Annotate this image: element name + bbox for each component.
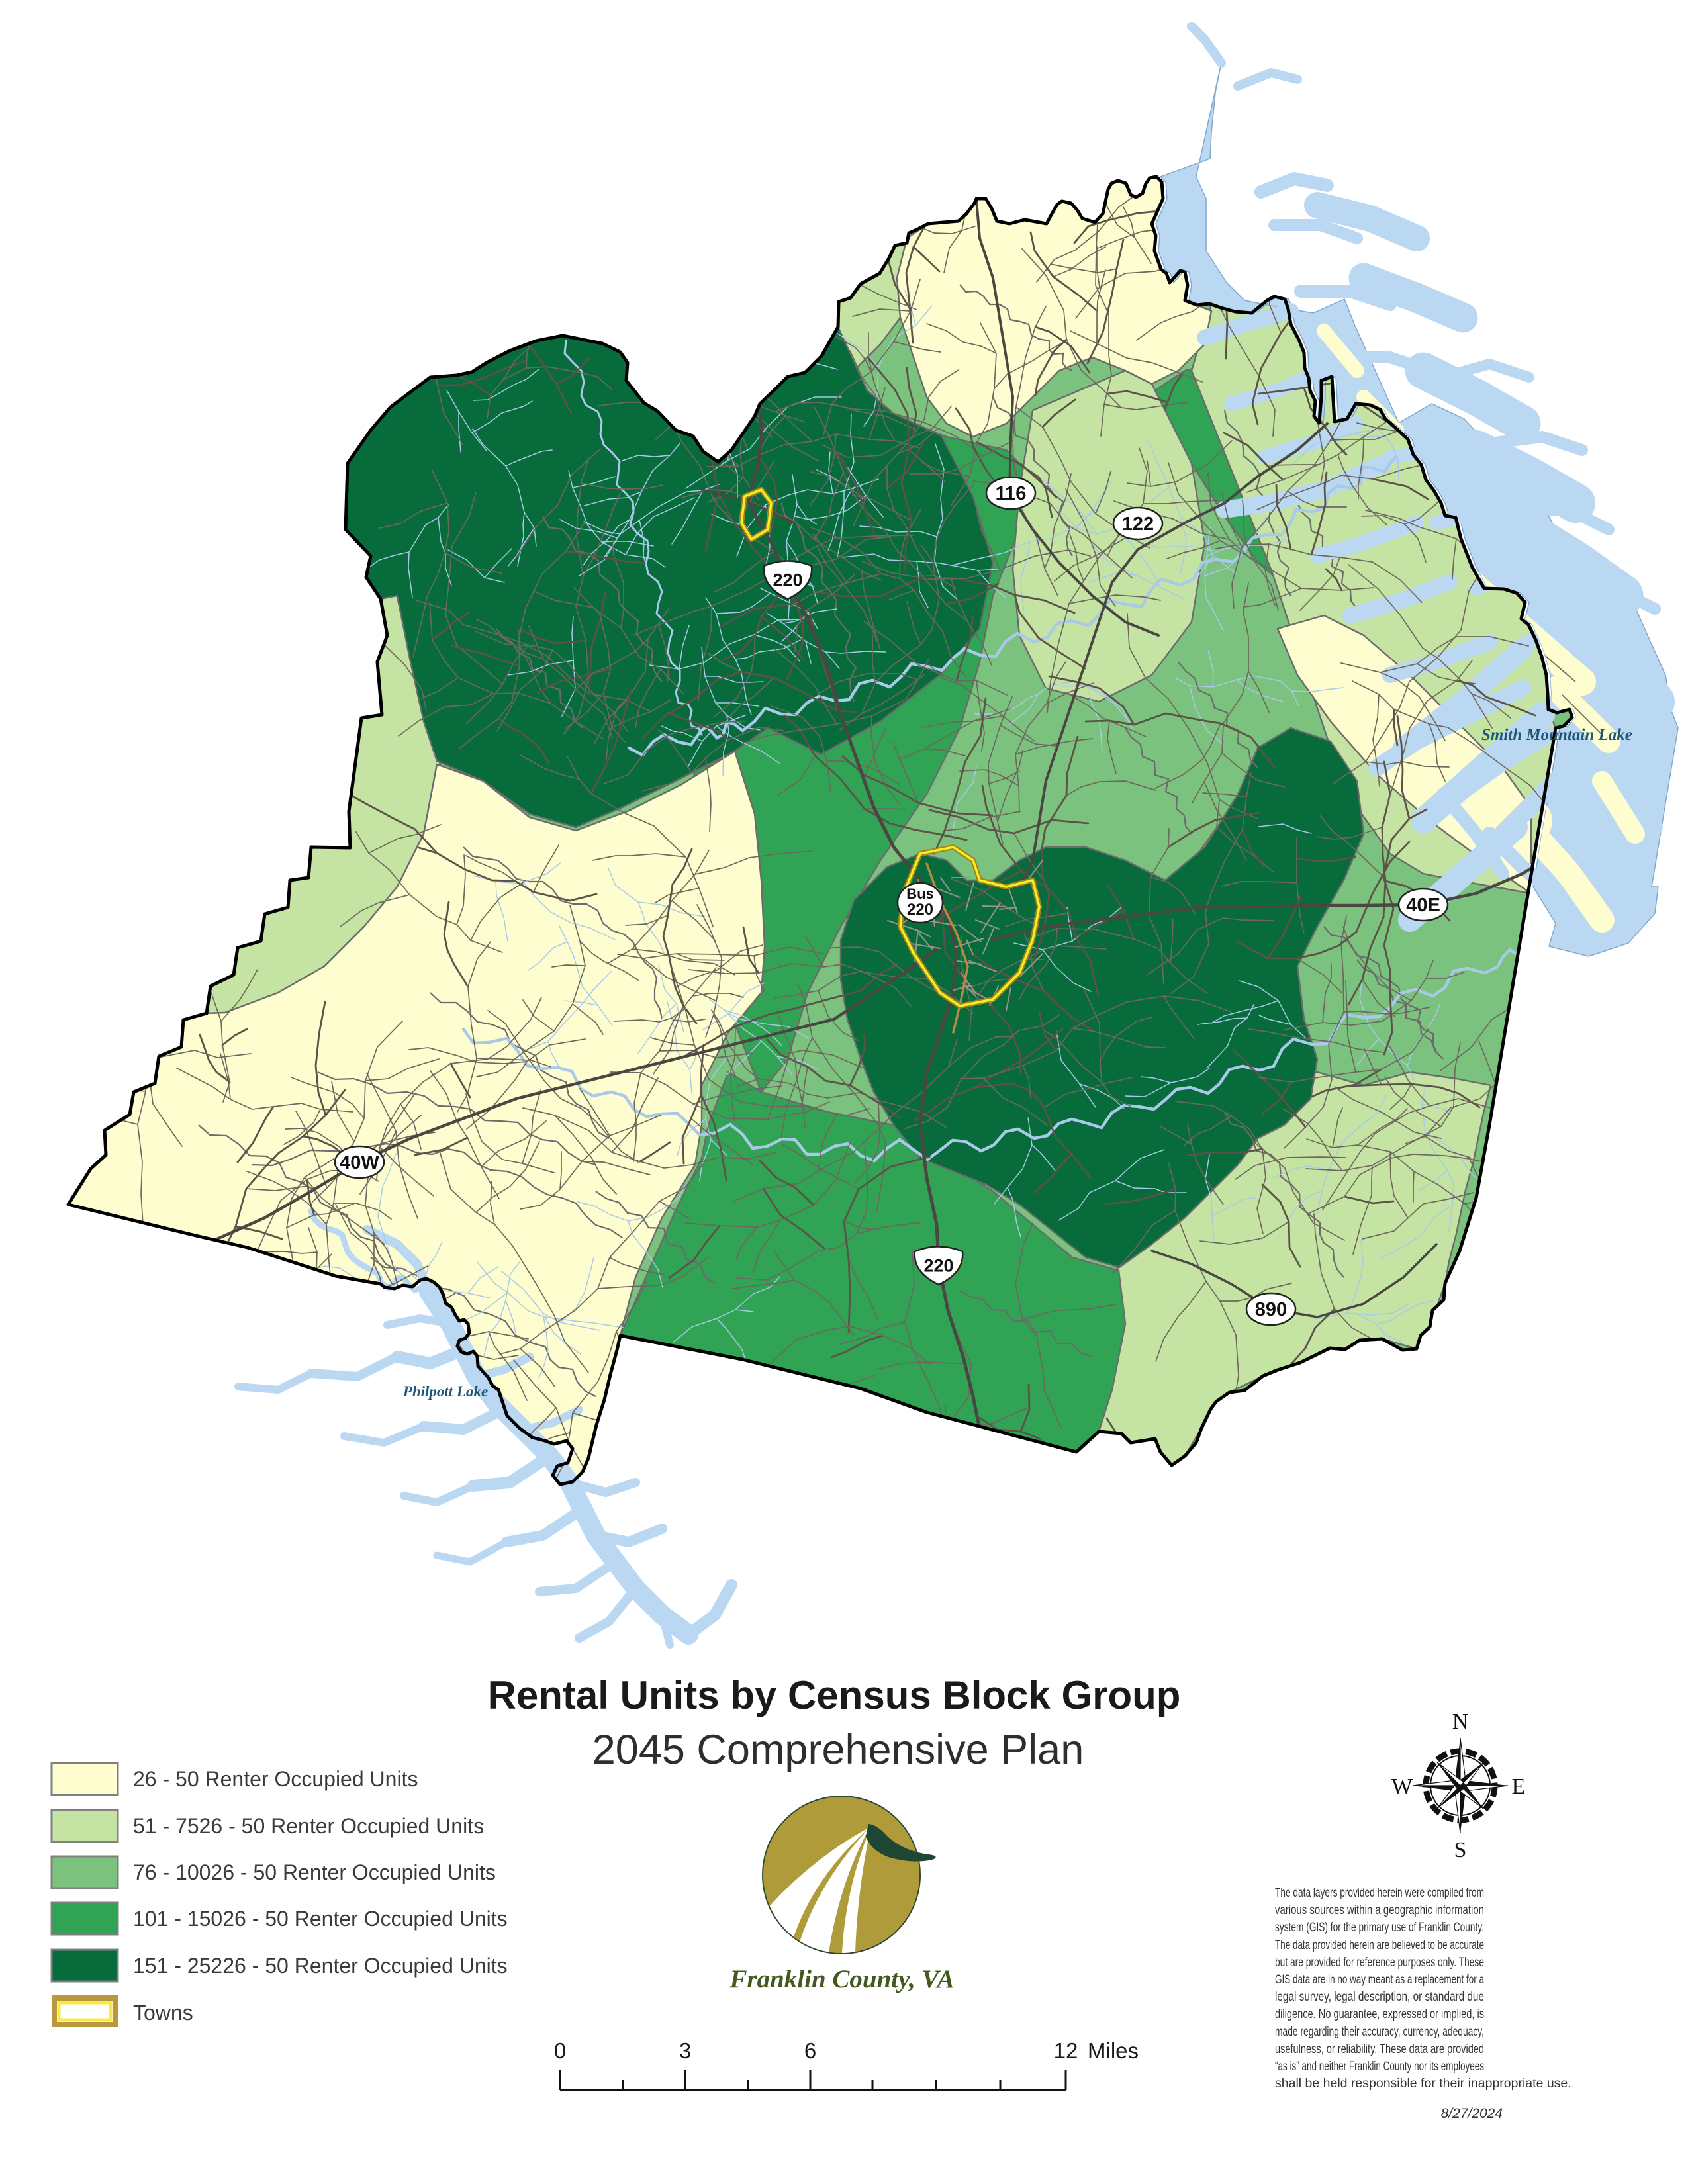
svg-text:N: N: [1452, 1709, 1469, 1734]
svg-text:usefulness, or reliability. Th: usefulness, or reliability. These data a…: [1275, 2042, 1484, 2056]
svg-text:Towns: Towns: [133, 2001, 193, 2025]
svg-text:6: 6: [804, 2038, 816, 2063]
svg-text:220: 220: [907, 901, 933, 919]
svg-text:Smith Mountain Lake: Smith Mountain Lake: [1481, 726, 1632, 744]
svg-text:3: 3: [679, 2038, 691, 2063]
svg-text:116: 116: [996, 483, 1027, 504]
svg-text:Miles: Miles: [1088, 2038, 1139, 2063]
svg-text:“as is” and neither Franklin C: “as is” and neither Franklin County nor …: [1275, 2059, 1484, 2073]
svg-text:890: 890: [1255, 1299, 1287, 1320]
svg-text:W: W: [1391, 1774, 1413, 1799]
svg-text:151 - 25226 - 50 Renter Occupi: 151 - 25226 - 50 Renter Occupied Units: [133, 1954, 508, 1978]
svg-text:8/27/2024: 8/27/2024: [1441, 2106, 1503, 2121]
svg-text:S: S: [1454, 1838, 1467, 1862]
svg-text:legal survey, legal descriptio: legal survey, legal description, or stan…: [1275, 1989, 1484, 2004]
svg-text:GIS data are in no way meant a: GIS data are in no way meant as a replac…: [1275, 1972, 1484, 1987]
svg-text:system (GIS) for the primary u: system (GIS) for the primary use of Fran…: [1275, 1920, 1484, 1934]
svg-text:220: 220: [773, 570, 802, 590]
svg-text:The data layers provided herei: The data layers provided herein were com…: [1275, 1886, 1484, 1900]
svg-text:101 - 15026 - 50 Renter Occupi: 101 - 15026 - 50 Renter Occupied Units: [133, 1907, 508, 1931]
svg-text:76 - 10026 - 50 Renter Occupie: 76 - 10026 - 50 Renter Occupied Units: [133, 1860, 496, 1884]
svg-text:Franklin County, VA: Franklin County, VA: [729, 1965, 954, 1993]
svg-text:26 - 50 Renter Occupied Units: 26 - 50 Renter Occupied Units: [133, 1767, 418, 1791]
svg-text:diligence. No guarantee, expre: diligence. No guarantee, expressed or im…: [1275, 2007, 1484, 2021]
svg-text:Philpott Lake: Philpott Lake: [402, 1383, 488, 1400]
svg-text:made regarding their accuracy,: made regarding their accuracy, currency,…: [1275, 2025, 1484, 2039]
svg-text:12: 12: [1054, 2038, 1078, 2063]
svg-text:but are provided for reference: but are provided for reference purposes …: [1275, 1955, 1484, 1970]
svg-text:shall be held responsible for: shall be held responsible for their inap…: [1275, 2076, 1571, 2091]
svg-text:51 - 7526 - 50 Renter Occupied: 51 - 7526 - 50 Renter Occupied Units: [133, 1814, 484, 1838]
svg-text:40W: 40W: [340, 1152, 379, 1173]
svg-text:The data provided herein are b: The data provided herein are believed to…: [1275, 1938, 1484, 1952]
svg-text:2045 Comprehensive Plan: 2045 Comprehensive Plan: [592, 1727, 1084, 1773]
svg-text:0: 0: [554, 2038, 566, 2063]
svg-text:Rental Units by Census Block G: Rental Units by Census Block Group: [488, 1673, 1181, 1717]
svg-text:40E: 40E: [1406, 895, 1440, 916]
svg-text:various sources within a geogr: various sources within a geographic info…: [1275, 1903, 1484, 1917]
svg-text:220: 220: [923, 1255, 953, 1275]
svg-text:Bus: Bus: [906, 886, 934, 902]
svg-text:E: E: [1512, 1774, 1526, 1799]
svg-text:122: 122: [1122, 514, 1154, 535]
